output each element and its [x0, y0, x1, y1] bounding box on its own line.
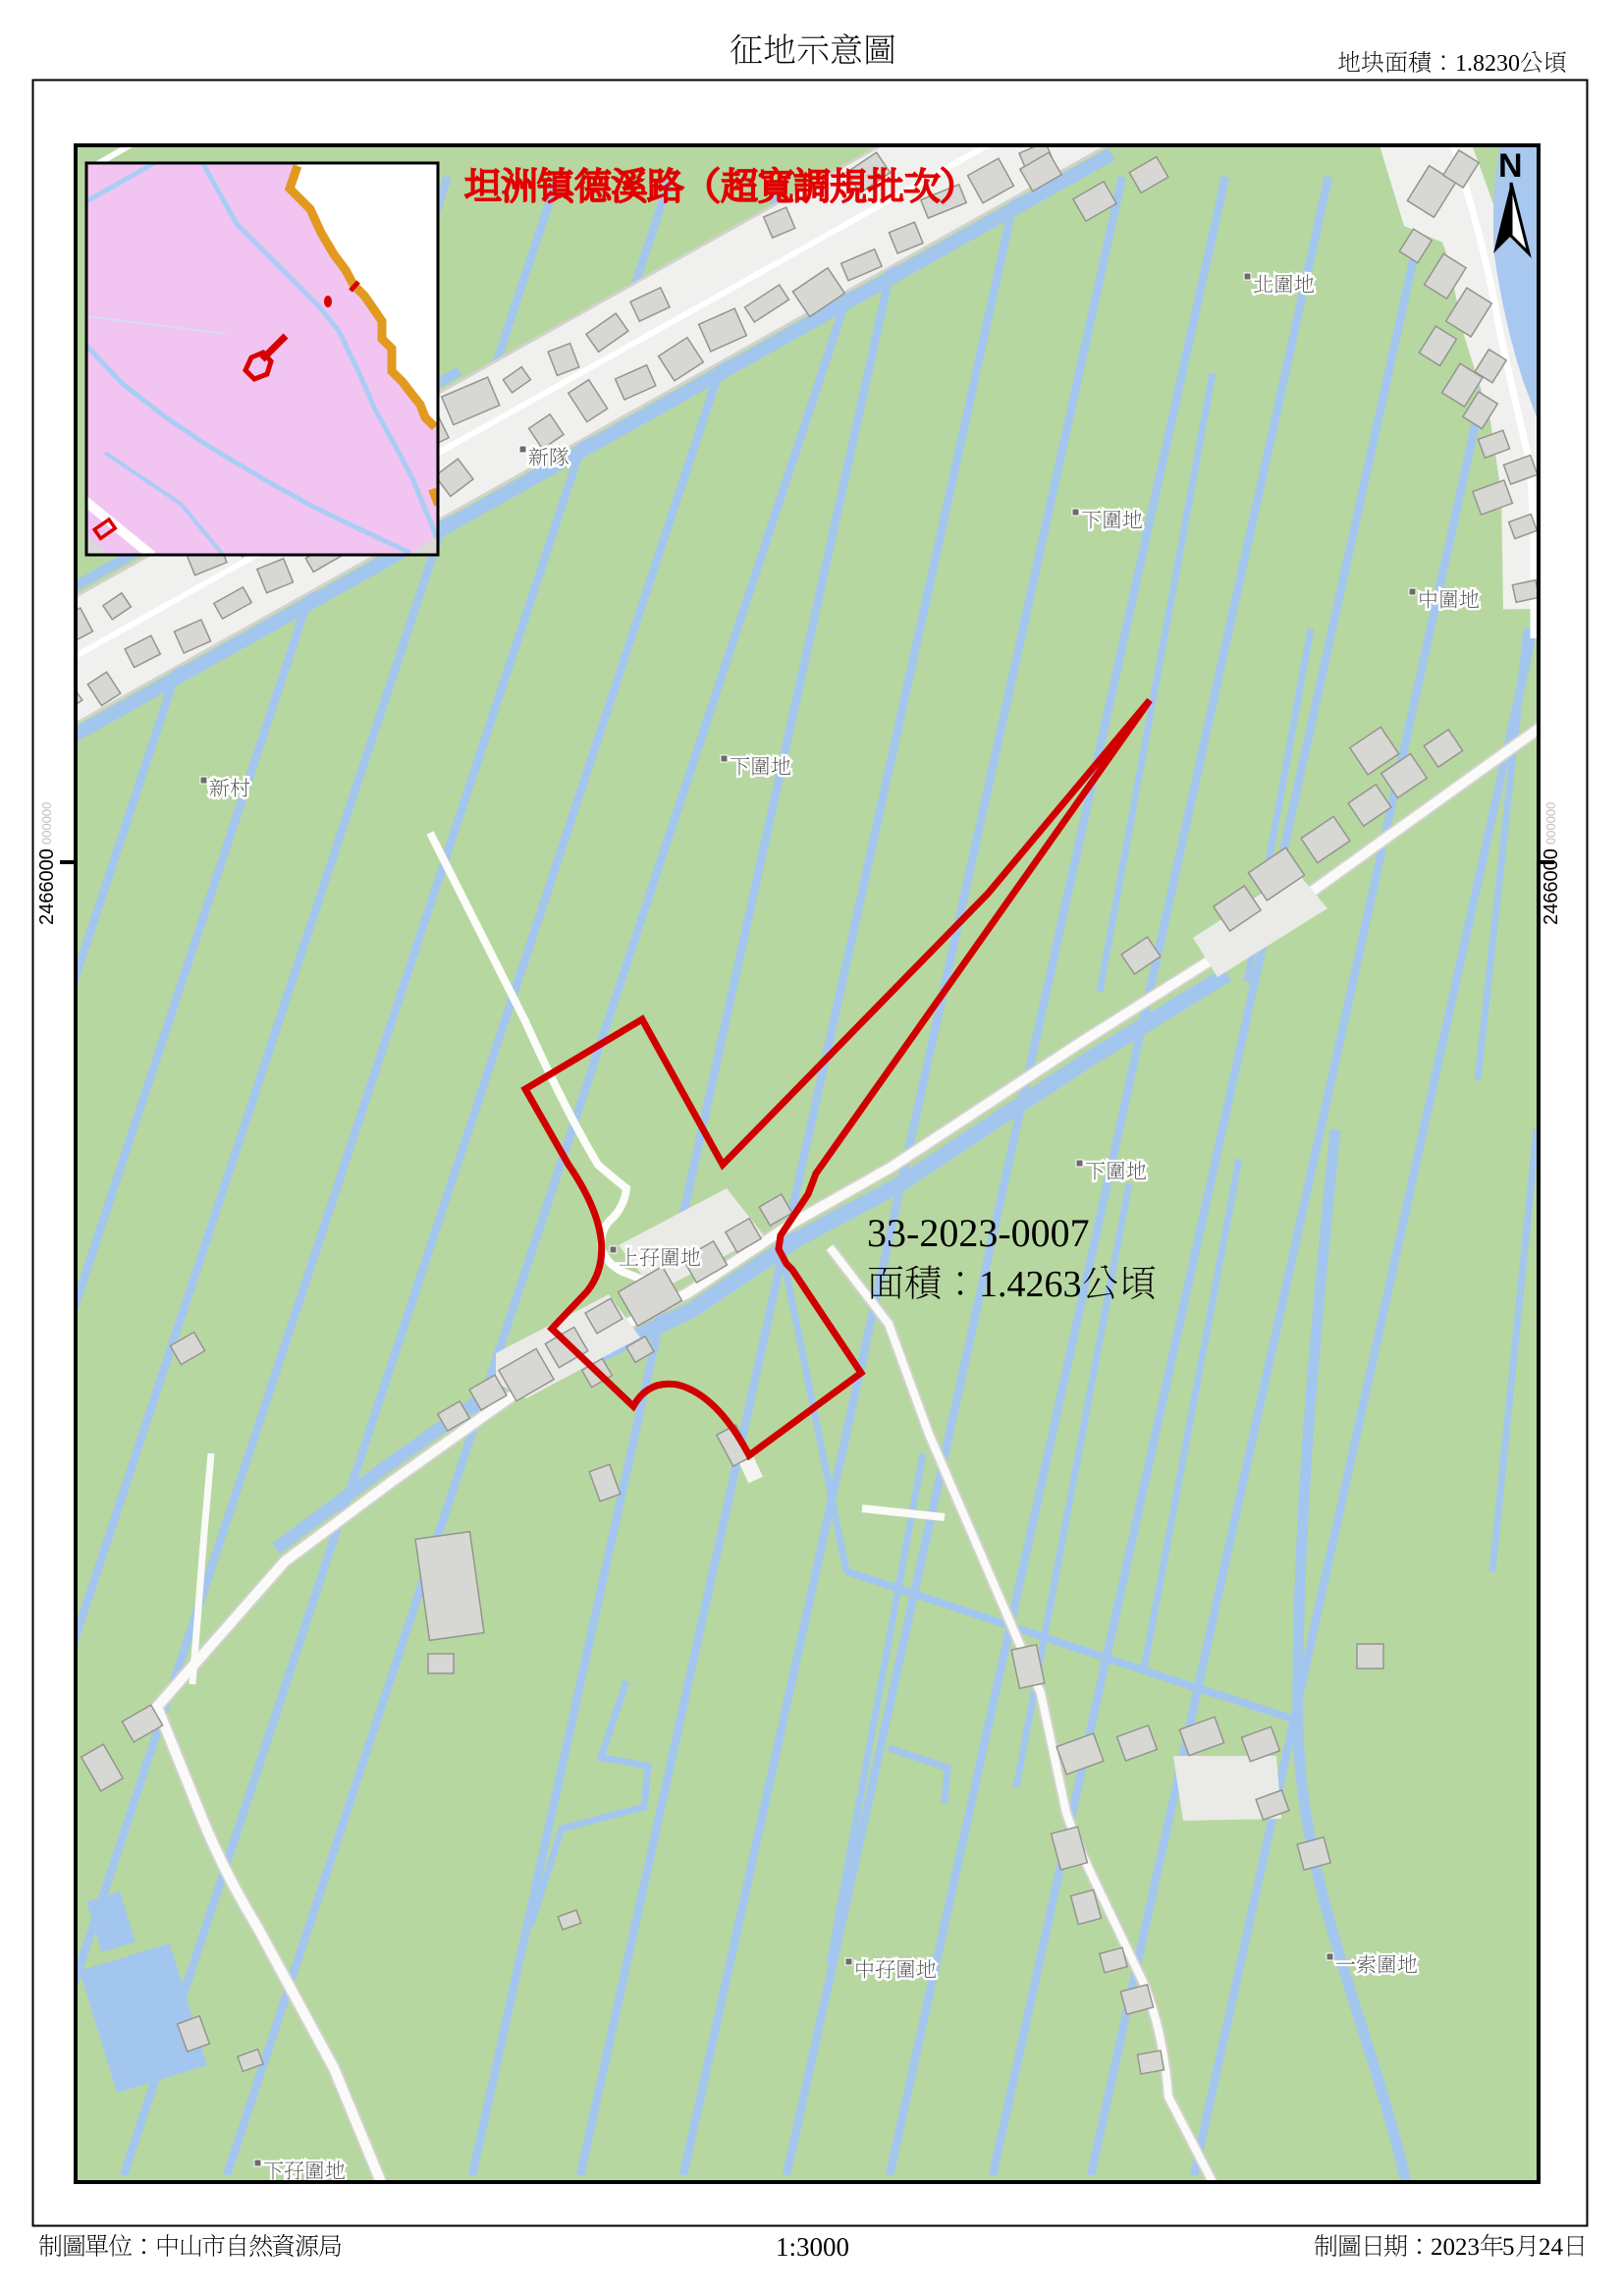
- svg-text:000000: 000000: [39, 802, 54, 845]
- svg-text:2023: 2023: [1431, 2234, 1480, 2261]
- svg-text:5: 5: [1502, 2234, 1515, 2261]
- svg-text:N: N: [1498, 147, 1523, 185]
- svg-text:2466000: 2466000: [1541, 848, 1562, 925]
- svg-text:2466000: 2466000: [36, 848, 58, 925]
- svg-text:24: 24: [1539, 2234, 1564, 2261]
- svg-text:33-2023-0007: 33-2023-0007: [867, 1211, 1090, 1255]
- svg-text:1.8230: 1.8230: [1455, 51, 1520, 77]
- svg-text:000000: 000000: [1543, 802, 1558, 845]
- svg-text:1:3000: 1:3000: [776, 2232, 849, 2262]
- svg-text:1.4263: 1.4263: [979, 1264, 1082, 1305]
